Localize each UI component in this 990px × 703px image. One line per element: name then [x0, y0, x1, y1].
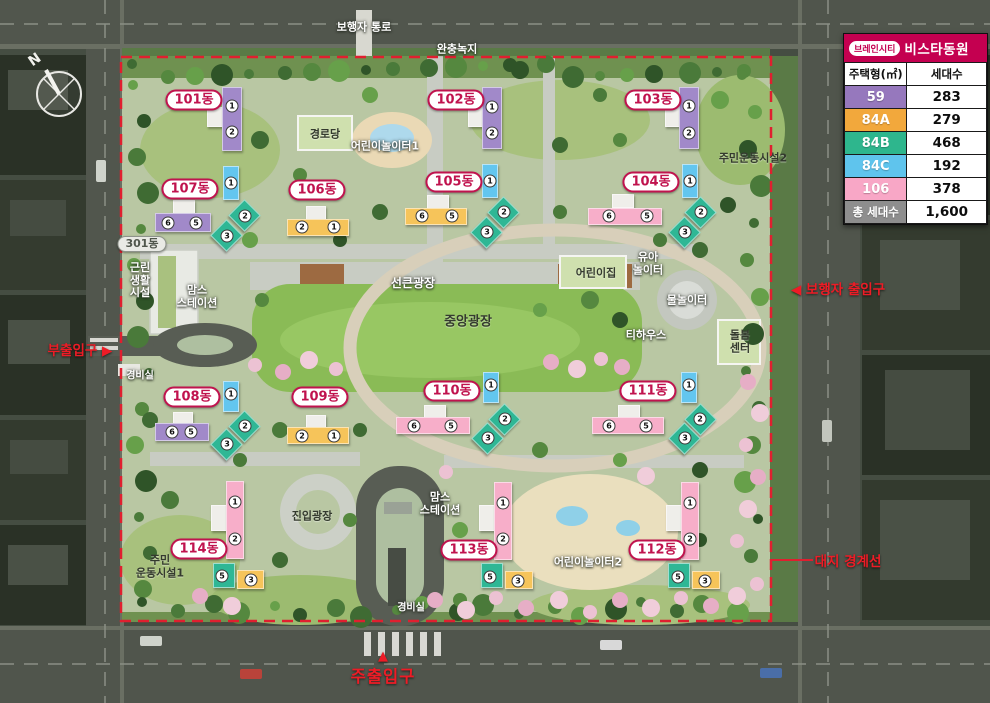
- unit-number-badge: 1: [683, 100, 696, 113]
- building-label-111동: 111동: [619, 381, 676, 402]
- unit-type-cell: 84B: [845, 132, 907, 155]
- unit-number-badge: 2: [226, 126, 239, 139]
- building-block: [306, 206, 326, 220]
- unit-count-cell: 192: [907, 155, 987, 178]
- unit-number-badge: 1: [683, 379, 696, 392]
- unit-number-badge: 2: [239, 210, 252, 223]
- unit-mix-row: 84B468: [845, 132, 987, 155]
- unit-number-badge: 1: [684, 175, 697, 188]
- unit-number-badge: 5: [445, 420, 458, 433]
- building-label-112동: 112동: [628, 540, 685, 561]
- building-label-114동: 114동: [170, 539, 227, 560]
- unit-mix-row: 106378: [845, 178, 987, 201]
- unit-number-badge: 1: [486, 101, 499, 114]
- unit-count-cell: 378: [907, 178, 987, 201]
- unit-number-badge: 1: [485, 379, 498, 392]
- unit-number-badge: 6: [416, 210, 429, 223]
- unit-number-badge: 3: [245, 574, 258, 587]
- unit-mix-row: 84A279: [845, 109, 987, 132]
- building-block: [427, 195, 449, 209]
- unit-type-cell: 106: [845, 178, 907, 201]
- building-block: [211, 505, 227, 531]
- building-block: [226, 481, 244, 559]
- unit-count-cell: 283: [907, 86, 987, 109]
- unit-number-badge: 5: [641, 210, 654, 223]
- building-label-103동: 103동: [624, 90, 681, 111]
- unit-number-badge: 1: [497, 497, 510, 510]
- unit-type-cell: 84C: [845, 155, 907, 178]
- unit-number-badge: 2: [499, 413, 512, 426]
- legend-title: 브레인시티 비스타동원: [844, 34, 987, 62]
- unit-number-badge: 3: [512, 575, 525, 588]
- buildings-layer: 12101동12102동12103동65123107동21106동6512310…: [0, 0, 990, 703]
- building-label-104동: 104동: [622, 172, 679, 193]
- unit-number-badge: 6: [603, 210, 616, 223]
- unit-number-badge: 6: [603, 420, 616, 433]
- building-block: [222, 87, 242, 151]
- unit-number-badge: 6: [162, 217, 175, 230]
- building-label-107동: 107동: [161, 179, 218, 200]
- unit-number-badge: 1: [684, 497, 697, 510]
- building-block: [666, 505, 682, 531]
- unit-number-badge: 2: [486, 127, 499, 140]
- col-header-type: 주택형(㎡): [845, 63, 907, 86]
- building-label-110동: 110동: [423, 381, 480, 402]
- unit-number-badge: 2: [498, 206, 511, 219]
- unit-number-badge: 2: [683, 127, 696, 140]
- site-plan: 12101동12102동12103동65123107동21106동6512310…: [0, 0, 990, 703]
- unit-number-badge: 1: [225, 388, 238, 401]
- unit-number-badge: 2: [229, 533, 242, 546]
- col-header-count: 세대수: [907, 63, 987, 86]
- unit-count-cell: 279: [907, 109, 987, 132]
- unit-mix-row: 84C192: [845, 155, 987, 178]
- building-block: [612, 194, 634, 208]
- building-block: [155, 423, 209, 441]
- unit-number-badge: 3: [679, 226, 692, 239]
- unit-number-badge: 3: [481, 226, 494, 239]
- unit-number-badge: 5: [446, 210, 459, 223]
- brand-name: 비스타동원: [904, 38, 969, 58]
- unit-number-badge: 3: [699, 575, 712, 588]
- unit-type-cell: 총 세대수: [845, 201, 907, 224]
- unit-number-badge: 1: [229, 496, 242, 509]
- building-label-301동: 301동: [117, 236, 166, 252]
- unit-number-badge: 5: [216, 570, 229, 583]
- building-label-108동: 108동: [163, 387, 220, 408]
- unit-number-badge: 2: [684, 533, 697, 546]
- unit-number-badge: 5: [190, 217, 203, 230]
- legend-panel: 브레인시티 비스타동원 주택형(㎡) 세대수 5928384A27984B468…: [843, 33, 988, 225]
- unit-number-badge: 2: [239, 420, 252, 433]
- unit-number-badge: 5: [640, 420, 653, 433]
- unit-mix-row: 59283: [845, 86, 987, 109]
- building-label-109동: 109동: [291, 387, 348, 408]
- building-block: [679, 87, 699, 149]
- unit-number-badge: 3: [482, 432, 495, 445]
- compass: N: [26, 52, 92, 124]
- unit-number-badge: 1: [484, 175, 497, 188]
- unit-mix-table: 주택형(㎡) 세대수 5928384A27984B46884C192106378…: [844, 62, 987, 224]
- unit-count-cell: 1,600: [907, 201, 987, 224]
- unit-number-badge: 5: [185, 426, 198, 439]
- building-block: [479, 505, 495, 531]
- unit-count-cell: 468: [907, 132, 987, 155]
- unit-number-badge: 5: [484, 571, 497, 584]
- unit-mix-total-row: 총 세대수1,600: [845, 201, 987, 224]
- building-label-105동: 105동: [425, 172, 482, 193]
- unit-number-badge: 6: [166, 426, 179, 439]
- unit-type-cell: 84A: [845, 109, 907, 132]
- unit-number-badge: 2: [497, 533, 510, 546]
- unit-type-cell: 59: [845, 86, 907, 109]
- unit-number-badge: 2: [296, 221, 309, 234]
- unit-number-badge: 1: [226, 100, 239, 113]
- unit-number-badge: 1: [328, 221, 341, 234]
- unit-number-badge: 1: [328, 430, 341, 443]
- unit-number-badge: 2: [695, 206, 708, 219]
- unit-number-badge: 5: [672, 571, 685, 584]
- unit-number-badge: 3: [221, 230, 234, 243]
- unit-number-badge: 3: [221, 438, 234, 451]
- brand-badge: 브레인시티: [849, 41, 900, 56]
- unit-number-badge: 6: [408, 420, 421, 433]
- building-label-101동: 101동: [165, 90, 222, 111]
- building-label-113동: 113동: [440, 540, 497, 561]
- building-block: [482, 87, 502, 149]
- building-label-106동: 106동: [288, 180, 345, 201]
- unit-number-badge: 2: [296, 430, 309, 443]
- building-label-102동: 102동: [427, 90, 484, 111]
- unit-number-badge: 2: [694, 413, 707, 426]
- unit-mix-header-row: 주택형(㎡) 세대수: [845, 63, 987, 86]
- unit-number-badge: 1: [225, 177, 238, 190]
- unit-number-badge: 3: [679, 432, 692, 445]
